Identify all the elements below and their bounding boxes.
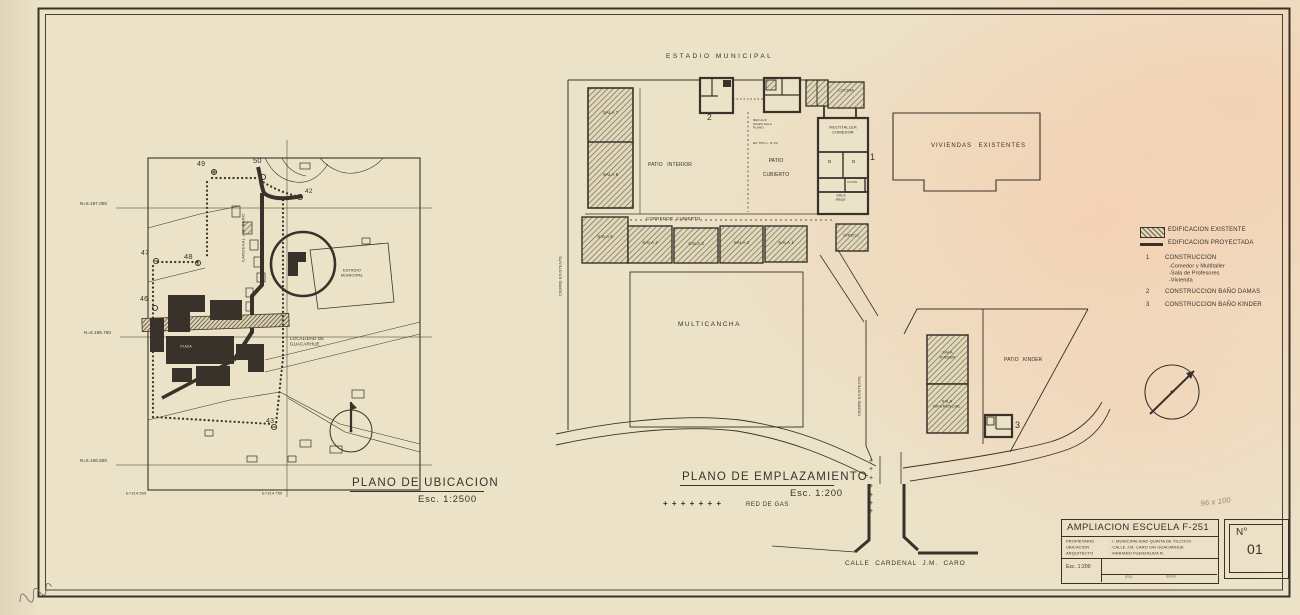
legend-note3: CONSTRUCCION BAÑO KINDER — [1165, 302, 1262, 310]
street-curbs — [855, 484, 978, 553]
marker-1: 1 — [870, 152, 875, 163]
row-value: : CALLE J.M. CARO S/N GUACARHUE — [1110, 545, 1184, 550]
coord-n-top: N=6.197.000 — [80, 201, 107, 207]
north-arrow-emplazamiento — [1145, 365, 1199, 419]
sheet-number-label: N° — [1236, 527, 1248, 540]
label-estadio-municipal-top: ESTADIO MUNICIPAL — [666, 53, 773, 61]
title-block-divider-1 — [1061, 536, 1218, 537]
building-bano-damas — [700, 78, 733, 113]
row-value: : MARIANO FUENZALIDA R. — [1110, 551, 1164, 556]
label-multicancha: MULTICANCHA — [678, 321, 741, 329]
legend-note3-num: 3 — [1146, 302, 1150, 310]
node-47: 47 — [141, 250, 149, 259]
legend-existing: EDIFICACION EXISTENTE — [1168, 227, 1246, 235]
row-value: : I. MUNICIPALIDAD QUINTA DE TILCOCO — [1110, 539, 1191, 544]
legend-note2-num: 2 — [1146, 289, 1150, 297]
label-sala1: SALA 1 — [765, 240, 807, 246]
room-sala7-sala6 — [588, 88, 633, 208]
site-highlight-circle — [271, 232, 335, 296]
ubicacion-scale: Esc. 1:2500 — [418, 494, 477, 506]
ubicacion-title: PLANO DE UBICACION — [352, 476, 499, 490]
kinder-area — [904, 309, 1088, 452]
label-patio-kinder: PATIO KINDER — [1004, 357, 1042, 363]
legend-note1b: -Sala de Profesores — [1169, 270, 1220, 277]
node-48: 48 — [184, 252, 193, 261]
label-sala-diferencial: SALA DIFERENCIAL — [926, 399, 968, 409]
label-plaza: PLAZA — [172, 345, 200, 349]
label-sala6: SALA 6 — [588, 172, 633, 178]
legend-projected: EDIFICACION PROYECTADA — [1168, 240, 1254, 248]
node-49: 49 — [197, 161, 205, 170]
annotation-small-1: RED AUX INCEN SALA PLANO — [753, 119, 772, 130]
annotation-small-2: EN TIPO L. B 1/2 — [753, 142, 778, 146]
label-dormitorio-1: D — [828, 159, 831, 165]
label-cierre-existente-left: CIERRE EXISTENTE — [558, 256, 563, 296]
legend-note1a: -Comedor y Multitaller — [1169, 263, 1225, 270]
titleblock-row-ubicacion: UBICACION: CALLE J.M. CARO S/N GUACARHUE — [1066, 545, 1216, 550]
titleblock-small-left: prop. — [1125, 575, 1133, 579]
legend-swatch-existing — [1140, 227, 1165, 238]
room-cocina — [828, 82, 864, 108]
gas-legend-label: RED DE GAS — [746, 502, 789, 510]
building-patio-cubierto-head — [764, 78, 800, 112]
gas-line-marks-vertical: + + + + + + + — [869, 458, 873, 517]
label-cocina: COCINA — [828, 88, 864, 93]
room-sala5 — [582, 217, 628, 263]
drawing-sheet: N=6.197.000 N=6.196.750 N=6.196.500 E=31… — [0, 0, 1300, 615]
ubicacion-map — [116, 140, 432, 497]
title-block-divider-3 — [1101, 574, 1217, 575]
handwritten-scribble — [17, 582, 54, 605]
row-label: ARQUITECTO — [1066, 551, 1110, 556]
label-direccion: DIRECC. — [836, 233, 868, 238]
gas-legend-marks: + + + + + + + — [663, 499, 722, 509]
emplazamiento-scale: Esc. 1:200 — [790, 488, 843, 500]
marker-2: 2 — [707, 112, 712, 123]
project-title: AMPLIACION ESCUELA F-251 — [1067, 522, 1209, 534]
title-block-divider-2 — [1061, 558, 1218, 559]
label-corredor-cubierto: CORREDOR CUBIERTO — [646, 216, 700, 222]
node-50: 50 — [253, 156, 262, 165]
label-multitaller-comedor: MULTITALLER COMEDOR — [818, 125, 868, 135]
label-patio-interior: PATIO INTERIOR — [648, 162, 692, 168]
label-sala-prof: SALA PROF. — [823, 194, 859, 203]
node-43: 43 — [266, 418, 274, 427]
label-cierre-existente-right: CIERRE EXISTENTE — [857, 376, 862, 416]
building-viviendas-existentes — [893, 113, 1040, 191]
label-dormitorio-2: D — [852, 159, 855, 165]
label-sala-kinder: SALA KINDER — [927, 350, 968, 360]
coord-n-bot: N=6.196.500 — [80, 458, 107, 464]
row-label: PROPIETARIO — [1066, 539, 1110, 544]
row-label: UBICACION — [1066, 545, 1110, 550]
coord-n-mid: N=6.196.750 — [84, 330, 111, 336]
label-localidad-guacarhue: LOCALIDAD DE GUACARHUE — [290, 336, 324, 347]
titleblock-small-right: dicbre. — [1166, 575, 1177, 579]
legend-note1c: -Vivienda — [1169, 277, 1193, 284]
label-patio-cubierto: PATIO CUBIERTO — [756, 154, 796, 182]
legend-note1-num: 1 — [1146, 255, 1150, 263]
coord-e-left: E=314.500 — [126, 491, 146, 496]
label-sala3: SALA 3 — [674, 241, 718, 247]
label-viviendas-existentes: VIVIENDAS EXISTENTES — [916, 143, 1041, 151]
multicancha-court — [630, 272, 803, 427]
label-estadio-municipal-map: ESTADIO MUNICIPAL — [335, 268, 369, 278]
legend-note2: CONSTRUCCION BAÑO DAMAS — [1165, 289, 1260, 297]
building-bano-kinder — [985, 415, 1012, 437]
titleblock-row-propietario: PROPIETARIO: I. MUNICIPALIDAD QUINTA DE … — [1066, 539, 1216, 544]
title-block-divider-v — [1101, 558, 1102, 582]
label-sala5: SALA 5 — [582, 234, 628, 240]
emplazamiento-plan — [556, 78, 1199, 553]
label-sala2: SALA 2 — [720, 240, 763, 246]
coord-e-right: E=314.750 — [262, 491, 282, 496]
emplazamiento-title: PLANO DE EMPLAZAMIENTO — [682, 470, 868, 484]
titleblock-scale: Esc. 1:200 — [1066, 564, 1091, 570]
node-42: 42 — [305, 188, 313, 196]
legend-swatch-projected — [1140, 243, 1163, 246]
titleblock-row-arquitecto: ARQUITECTO: MARIANO FUENZALIDA R. — [1066, 551, 1216, 556]
legend-note1: CONSTRUCCION — [1165, 255, 1216, 263]
label-cocin: COCIN. — [847, 181, 858, 185]
label-calle-cardenal: CALLE CARDENAL J.M. CARO — [845, 560, 965, 568]
node-46: 46 — [140, 296, 148, 305]
marker-3: 3 — [1015, 420, 1020, 431]
label-sala4: SALA 4 — [628, 240, 672, 246]
ubicacion-title-underline — [350, 491, 484, 492]
emplazamiento-title-underline — [680, 485, 834, 486]
sheet-number: 01 — [1229, 541, 1281, 559]
label-sala7: SALA 7 — [588, 110, 633, 116]
label-street-cardenal-caro: CARDENAL J.M. CARO — [241, 214, 246, 262]
